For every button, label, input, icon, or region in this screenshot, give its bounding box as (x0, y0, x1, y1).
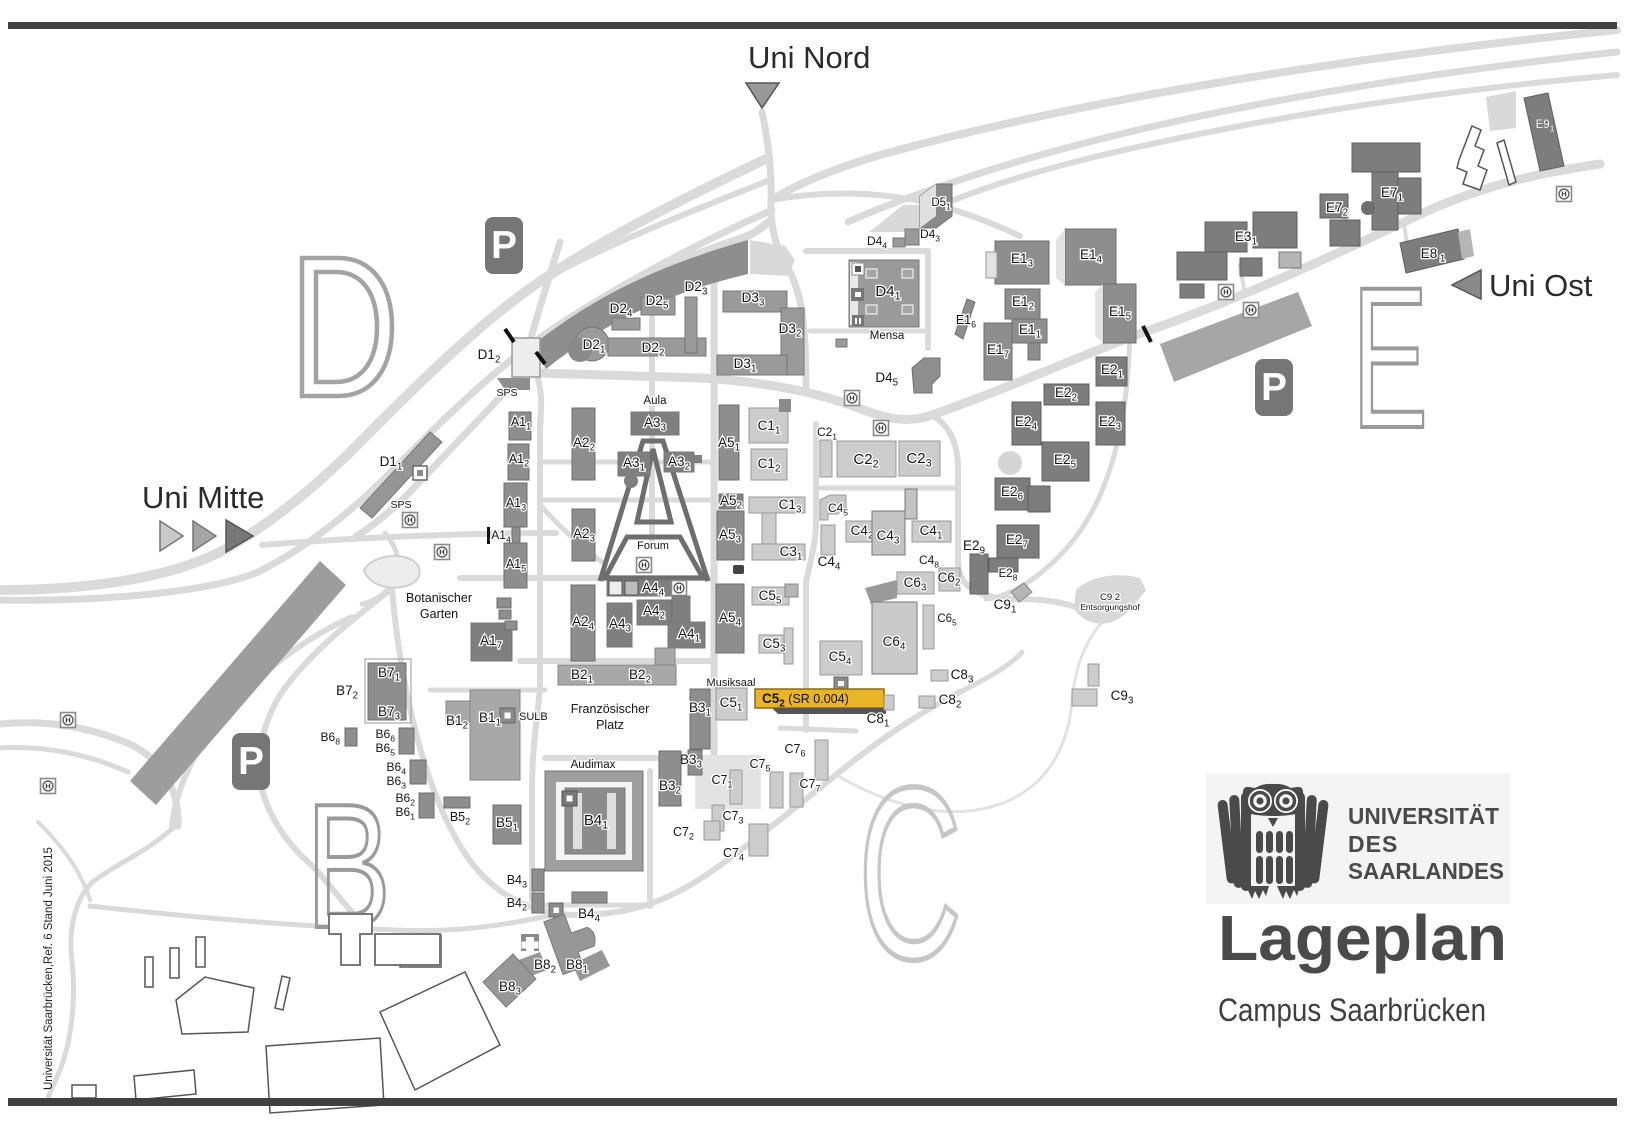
svg-text:Entsorgungshof: Entsorgungshof (1080, 602, 1140, 612)
svg-text:Lageplan: Lageplan (1218, 902, 1507, 974)
svg-text:Aula: Aula (643, 395, 667, 407)
svg-text:Mensa: Mensa (870, 330, 905, 342)
svg-text:Uni Mitte: Uni Mitte (142, 480, 264, 515)
svg-text:Musiksaal: Musiksaal (707, 677, 756, 689)
svg-text:H: H (1561, 190, 1566, 199)
svg-text:Uni Nord: Uni Nord (748, 40, 870, 75)
svg-text:Garten: Garten (420, 607, 458, 621)
svg-text:H: H (878, 424, 883, 433)
svg-text:H: H (676, 584, 681, 593)
svg-text:UNIVERSITÄT: UNIVERSITÄT (1348, 803, 1499, 829)
svg-text:Campus Saarbrücken: Campus Saarbrücken (1218, 992, 1486, 1028)
svg-text:H: H (849, 394, 854, 403)
svg-text:Audimax: Audimax (571, 759, 616, 771)
svg-text:P: P (1261, 366, 1287, 409)
svg-text:H: H (641, 561, 646, 570)
svg-text:Französischer: Französischer (571, 702, 650, 716)
svg-text:Platz: Platz (596, 718, 624, 732)
svg-text:P: P (491, 224, 517, 267)
svg-text:P: P (238, 740, 264, 783)
svg-text:Universität Saarbrücken,Ref. 6: Universität Saarbrücken,Ref. 6 Stand Jun… (43, 847, 55, 1090)
svg-text:C: C (858, 736, 962, 1010)
svg-text:SPS: SPS (390, 499, 411, 511)
svg-text:Botanischer: Botanischer (406, 591, 472, 605)
svg-text:SAARLANDES: SAARLANDES (1348, 858, 1504, 884)
svg-text:H: H (439, 548, 444, 557)
svg-text:E: E (1352, 245, 1428, 470)
svg-text:SPS: SPS (496, 387, 517, 399)
svg-text:H: H (1223, 288, 1228, 297)
svg-text:DES: DES (1348, 831, 1398, 857)
svg-text:Uni Ost: Uni Ost (1489, 268, 1593, 303)
svg-text:H: H (45, 782, 50, 791)
svg-text:Forum: Forum (637, 540, 669, 552)
svg-text:H: H (1248, 306, 1253, 315)
svg-text:H: H (407, 516, 412, 525)
svg-text:H: H (65, 716, 70, 725)
svg-text:SULB: SULB (519, 711, 548, 723)
